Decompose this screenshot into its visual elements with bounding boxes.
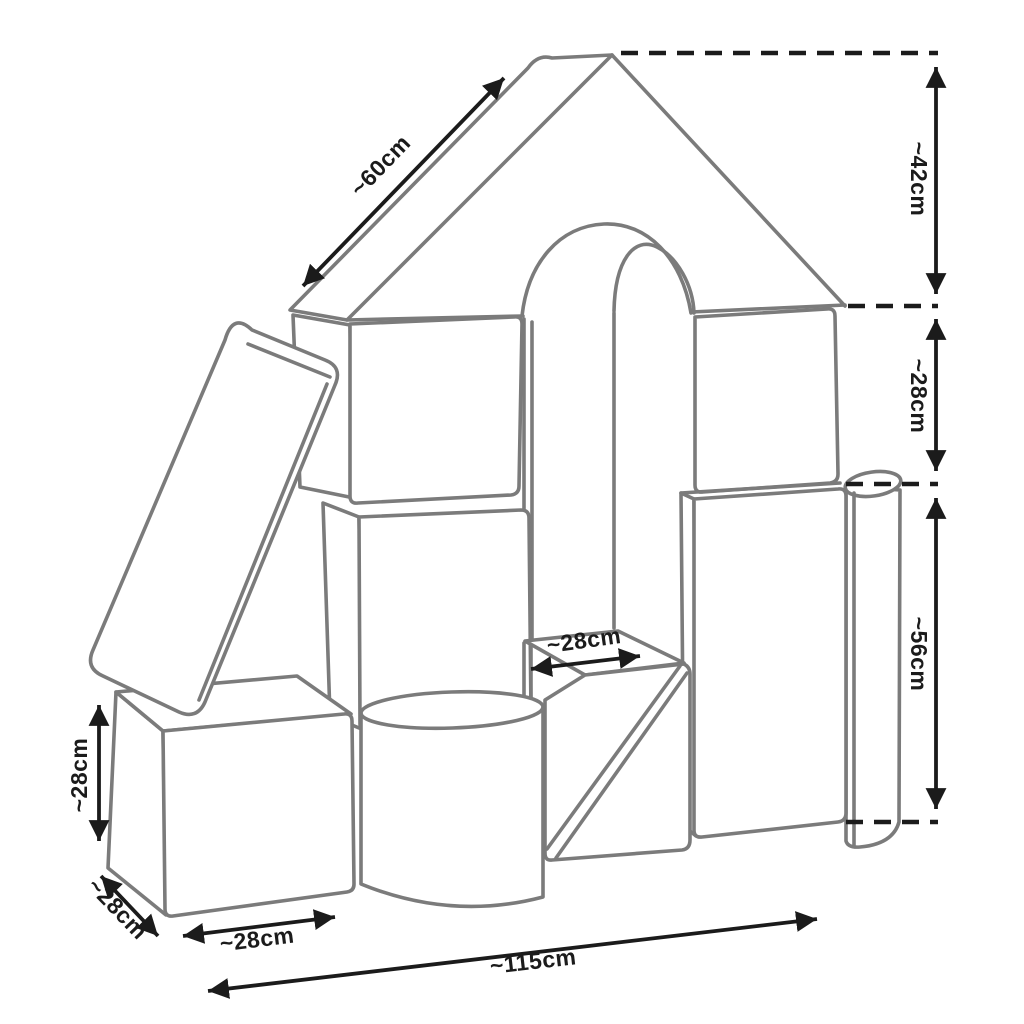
label-left-cube-width: ~28cm: [218, 922, 295, 957]
label-roof-height: ~42cm: [906, 142, 932, 217]
diagram-canvas: ~60cm ~42cm ~28cm ~56cm ~28cm ~28cm ~28c…: [0, 0, 1024, 1024]
right-column-front-face: [694, 489, 846, 837]
roof-left-slope-face: [290, 55, 612, 320]
leaning-board-face: [91, 323, 338, 715]
bottom-left-cube-front-face: [163, 714, 354, 916]
roof-right-slope-edge: [612, 55, 845, 306]
label-left-cube-height: ~28cm: [66, 738, 92, 813]
wedge-front-face: [545, 664, 690, 860]
blocks-dimension-diagram: ~60cm ~42cm ~28cm ~56cm ~28cm ~28cm ~28c…: [0, 0, 1024, 1024]
label-upper-wall-height: ~28cm: [906, 359, 932, 434]
upper-left-cube-front-face: [350, 317, 522, 503]
arch-outer-curve: [522, 224, 691, 316]
label-lower-wall-height: ~56cm: [906, 617, 932, 692]
foam-blocks-structure: [91, 55, 903, 916]
label-total-width: ~115cm: [489, 943, 578, 979]
cylinder-body: [361, 709, 543, 906]
upper-right-cube-front-face: [695, 309, 838, 492]
